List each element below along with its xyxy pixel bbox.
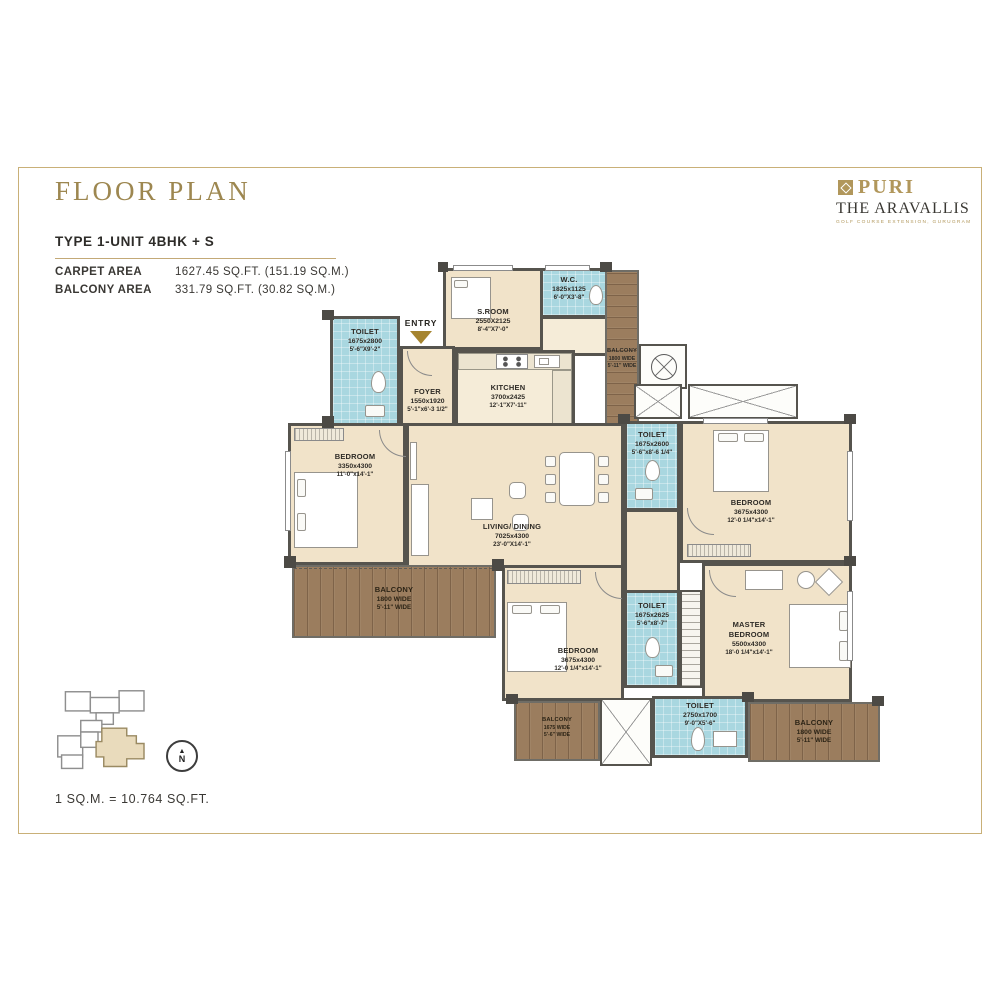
highlighted-unit xyxy=(96,728,144,766)
chair-icon xyxy=(598,456,609,467)
wardrobe-icon xyxy=(507,570,581,584)
open-to-sky-line xyxy=(294,568,492,569)
north-arrow: ▲ N xyxy=(166,740,198,772)
entry-marker: ENTRY xyxy=(396,318,446,344)
balcony-bottom-left: BALCONY 1675 WIDE 5'-6" WIDE xyxy=(514,701,600,761)
room-kitchen: KITCHEN 3700x2425 12'-1"X7'-11" xyxy=(455,350,575,431)
brand-name: PURI xyxy=(858,176,915,199)
room-label: BEDROOM 3675x4300 12'-0 1/4"x14'-1" xyxy=(535,646,621,674)
toilet-pot-icon xyxy=(645,460,660,481)
bed-icon xyxy=(294,472,358,548)
scale-note: 1 SQ.M. = 10.764 SQ.FT. xyxy=(55,792,210,806)
pillow xyxy=(744,433,764,442)
room-bedroom-bottom: BEDROOM 3675x4300 12'-0 1/4"x14'-1" xyxy=(502,565,624,701)
duct-shaft-bottom xyxy=(600,698,652,766)
unit-type-heading: TYPE 1-UNIT 4BHK + S xyxy=(55,234,214,249)
room-label: KITCHEN 3700x2425 12'-1"X7'-11" xyxy=(444,383,572,411)
washbasin-icon xyxy=(713,731,737,747)
washbasin-icon xyxy=(635,488,653,500)
room-master-bedroom: MASTER BEDROOM 5500x4300 18'-0 1/4"x14'-… xyxy=(702,563,852,702)
window xyxy=(847,591,853,661)
room-label: S.ROOM 2550X2125 8'-4"X7'-0" xyxy=(446,307,540,335)
room-bedroom-left: BEDROOM 3350x4300 11'-0"x14'-1" xyxy=(288,423,406,565)
hob-icon xyxy=(496,354,528,369)
entry-label: ENTRY xyxy=(396,318,446,328)
exhaust-fan-icon xyxy=(651,354,677,380)
balcony-left: BALCONY 1800 WIDE 5'-11" WIDE xyxy=(292,565,496,638)
room-servant: S.ROOM 2550X2125 8'-4"X7'-0" xyxy=(443,268,543,350)
project-name: THE ARAVALLIS xyxy=(836,200,976,218)
pillow xyxy=(512,605,532,614)
wall-pier xyxy=(492,559,504,571)
key-plan-drawing xyxy=(52,686,167,778)
wall-pier xyxy=(600,262,612,272)
washbasin-icon xyxy=(655,665,673,677)
wall-pier xyxy=(618,414,630,424)
pillow xyxy=(540,605,560,614)
room-label: BALCONY 1800 WIDE 5'-11" WIDE xyxy=(750,718,878,746)
duct-shaft-small xyxy=(634,384,682,419)
chair-icon xyxy=(598,492,609,503)
room-label: MASTER BEDROOM 5500x4300 18'-0 1/4"x14'-… xyxy=(649,620,849,658)
wall-pier xyxy=(506,694,518,704)
toilet-bottom: TOILET 2750x1700 9'-0"X5'-6" xyxy=(652,696,748,758)
kitchen-sink-icon xyxy=(534,355,560,368)
room-label: BEDROOM 3350x4300 11'-0"x14'-1" xyxy=(307,452,403,480)
floor-plan-drawing: S.ROOM 2550X2125 8'-4"X7'-0" W.C. 1825x1… xyxy=(278,256,894,778)
chair-icon xyxy=(545,474,556,485)
window xyxy=(847,451,853,521)
door-arc xyxy=(407,351,432,376)
wall-pier xyxy=(844,556,856,566)
room-label: W.C. 1825x1125 6'-0"X3'-8" xyxy=(533,275,605,303)
chair-icon xyxy=(545,492,556,503)
room-label: TOILET 2750x1700 9'-0"X5'-6" xyxy=(655,701,745,729)
window xyxy=(285,451,291,531)
sofa-icon xyxy=(411,484,429,556)
wall-pier xyxy=(742,692,754,702)
north-letter: N xyxy=(179,755,186,764)
room-bedroom-top-right: BEDROOM 3675x4300 12'-0 1/4"x14'-1" xyxy=(680,421,852,563)
room-label: BALCONY 1675 WIDE 5'-6" WIDE xyxy=(516,717,598,739)
sink-basin xyxy=(539,358,549,365)
pillow xyxy=(718,433,738,442)
carpet-area-label: CARPET AREA xyxy=(55,266,175,278)
room-label: BALCONY 1800 WIDE 5'-11" WIDE xyxy=(294,585,494,613)
brand-tagline: GOLF COURSE EXTENSION, GURUGRAM xyxy=(836,220,976,225)
wall-pier xyxy=(872,696,884,706)
page-title: FLOOR PLAN xyxy=(55,176,251,207)
door-arc xyxy=(709,570,736,597)
pillow xyxy=(454,280,468,288)
stool-icon xyxy=(797,571,815,589)
balcony-bottom-right: BALCONY 1800 WIDE 5'-11" WIDE xyxy=(748,702,880,762)
window xyxy=(453,265,513,271)
key-plan xyxy=(52,686,167,783)
room-label: BALCONY 1800 WIDE 5'-11" WIDE xyxy=(607,348,637,370)
pillow xyxy=(297,513,306,531)
diamond-logo-icon xyxy=(838,180,853,195)
chair-icon xyxy=(509,482,526,499)
pillow xyxy=(297,479,306,497)
wall-pier xyxy=(322,416,334,428)
wall-pier xyxy=(322,310,334,320)
wall-pier xyxy=(844,414,856,424)
entry-arrow-icon xyxy=(410,331,432,344)
wardrobe-icon xyxy=(294,428,344,441)
toilet-entry: TOILET 1675x2800 5'-6"X9'-2" xyxy=(330,316,400,431)
desk-icon xyxy=(745,570,783,590)
toilet-pot-icon xyxy=(691,727,705,751)
services-ledge xyxy=(639,344,687,389)
wall-pier xyxy=(438,262,448,272)
room-label: BEDROOM 3675x4300 12'-0 1/4"x14'-1" xyxy=(653,498,849,526)
washbasin-icon xyxy=(365,405,385,417)
dining-table-icon xyxy=(559,452,595,506)
balcony-area-label: BALCONY AREA xyxy=(55,284,175,296)
wall-pier xyxy=(284,556,296,568)
chair-icon xyxy=(598,474,609,485)
room-living-dining: LIVING/ DINING 7025x4300 23'-0"X14'-1" xyxy=(406,423,624,571)
duct-shaft-long xyxy=(688,384,798,419)
tv-unit-icon xyxy=(410,442,417,480)
room-label: LIVING/ DINING 7025x4300 23'-0"X14'-1" xyxy=(453,522,571,550)
room-label: TOILET 1675x2800 5'-6"X9'-2" xyxy=(333,327,397,355)
door-arc xyxy=(595,572,622,599)
chair-icon xyxy=(545,456,556,467)
coffee-table-icon xyxy=(471,498,493,520)
window xyxy=(703,418,768,424)
lounge-chair-icon xyxy=(815,568,843,596)
floor-plan-page: FLOOR PLAN PURI THE ARAVALLIS GOLF COURS… xyxy=(0,0,1000,1000)
bed-icon xyxy=(713,430,769,492)
toilet-pot-icon xyxy=(371,371,386,393)
room-wc: W.C. 1825x1125 6'-0"X3'-8" xyxy=(540,268,608,318)
wardrobe-icon xyxy=(687,544,751,557)
window xyxy=(545,265,590,271)
brand-logo: PURI THE ARAVALLIS GOLF COURSE EXTENSION… xyxy=(836,176,976,225)
room-label: TOILET 1675x2600 5'-6"x8'-6 1/4" xyxy=(627,430,677,458)
